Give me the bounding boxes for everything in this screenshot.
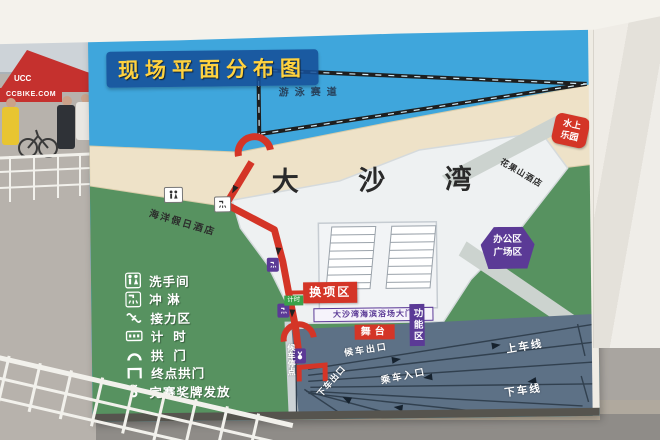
shower-icon <box>268 260 277 269</box>
map-title: 现场平面分布图 <box>118 52 307 84</box>
office-line: 办公区 <box>480 234 534 247</box>
shower-icon <box>279 306 288 315</box>
stage-badge: 舞台 <box>355 324 395 339</box>
transition-zone-badge: 换项区 <box>303 282 357 304</box>
shower-point-badge <box>277 304 289 318</box>
restroom-map-marker <box>164 187 183 203</box>
bikes-and-fence-graphic <box>0 110 96 240</box>
timing-point-badge: 计时 <box>284 295 303 305</box>
shower-map-marker <box>214 196 231 212</box>
shower-point-badge <box>267 258 279 272</box>
photo-scene: UCC CCBIKE.COM <box>0 0 660 440</box>
relay-icon <box>125 311 142 325</box>
white-tent-wall <box>593 0 660 348</box>
restroom-icon <box>167 189 180 200</box>
tent-logo-text: UCC <box>14 74 31 83</box>
bay-name-label: 大 沙 湾 <box>272 157 498 199</box>
barrier-fence-small <box>0 154 90 202</box>
restroom-icon <box>125 273 141 289</box>
map-title-bar: 现场平面分布图 <box>106 49 318 88</box>
function-zone-badge: 功能区 <box>409 304 425 346</box>
legend-item-restroom: 洗手间 <box>125 269 305 290</box>
swim-course-label: 游泳赛道 <box>279 83 343 99</box>
plaza-line: 广场区 <box>481 246 535 259</box>
shower-icon <box>125 291 141 307</box>
barrier-fence-foreground <box>0 340 300 440</box>
shower-icon <box>217 199 228 210</box>
